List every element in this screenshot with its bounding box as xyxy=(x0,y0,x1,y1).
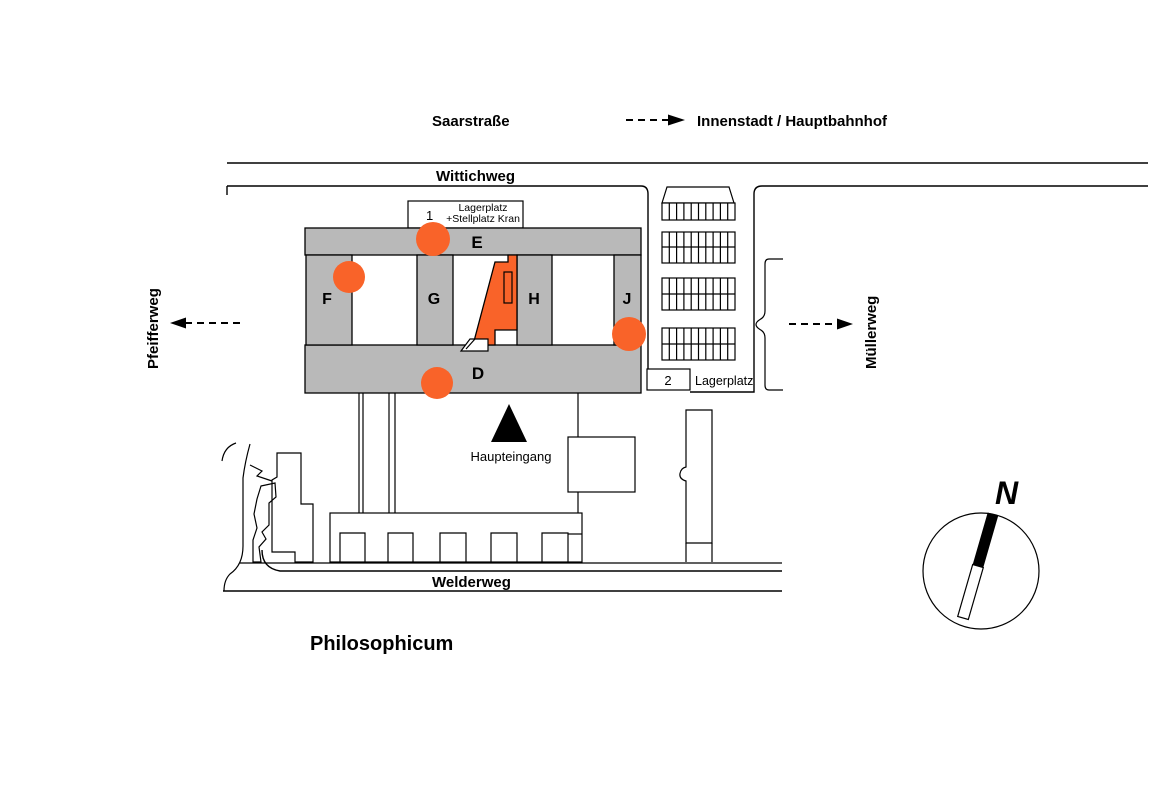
arrow-left-icon xyxy=(170,318,186,329)
compass-circle xyxy=(923,513,1039,629)
wing-h-label: H xyxy=(528,291,540,308)
street-welderweg-label: Welderweg xyxy=(432,574,511,591)
west-building-1 xyxy=(272,453,313,562)
orange-dot-2 xyxy=(333,261,365,293)
arrow-right-icon xyxy=(837,319,853,330)
street-muellerweg-label: Müllerweg xyxy=(863,296,880,369)
south-building-tall xyxy=(680,410,712,543)
direction-arrow-innenstadt xyxy=(626,115,685,126)
east-building-outline xyxy=(756,259,783,390)
main-entrance-label: Haupteingang xyxy=(471,449,552,464)
destination-label: Innenstadt / Hauptbahnhof xyxy=(697,113,888,130)
wing-g-label: G xyxy=(428,291,440,308)
north-label: N xyxy=(995,475,1019,511)
highlighted-building xyxy=(473,255,517,345)
building-complex: E F G H J D xyxy=(305,228,641,393)
direction-arrow-muellerweg xyxy=(789,319,853,330)
parking-area xyxy=(662,187,735,360)
corridor-lines xyxy=(359,393,395,513)
storage-2-label: Lagerplatz xyxy=(695,374,753,388)
orange-dot-3 xyxy=(612,317,646,351)
wing-d-label: D xyxy=(472,364,484,383)
wing-e-label: E xyxy=(471,233,482,252)
storage-box-2: 2 Lagerplatz xyxy=(647,369,753,390)
site-map: Saarstraße Innenstadt / Hauptbahnhof Wit… xyxy=(0,0,1175,800)
street-wittichweg-label: Wittichweg xyxy=(436,168,515,185)
street-pfeifferweg-label: Pfeifferweg xyxy=(145,288,162,369)
parking-roof xyxy=(662,187,734,203)
direction-arrow-pfeifferweg xyxy=(170,318,240,329)
storage-1-number: 1 xyxy=(426,208,433,223)
wing-j-label: J xyxy=(623,291,632,308)
south-building-long xyxy=(330,513,582,562)
south-building-small xyxy=(568,437,635,492)
compass: N xyxy=(923,475,1039,629)
site-map-svg: Saarstraße Innenstadt / Hauptbahnhof Wit… xyxy=(0,0,1175,800)
road-curve-large xyxy=(224,444,250,591)
arrow-right-icon xyxy=(668,115,685,126)
highlighted-building-annex xyxy=(461,339,488,351)
street-saarstrasse-label: Saarstraße xyxy=(432,113,510,130)
main-entrance: Haupteingang xyxy=(471,404,552,464)
road-curve-small xyxy=(222,443,236,461)
main-entrance-triangle-icon xyxy=(491,404,527,442)
map-title: Philosophicum xyxy=(310,633,453,655)
storage-2-number: 2 xyxy=(664,373,671,388)
wing-f-label: F xyxy=(322,291,332,308)
orange-dot-4 xyxy=(421,367,453,399)
storage-1-line2: +Stellplatz Kran xyxy=(446,213,520,225)
orange-dot-1 xyxy=(416,222,450,256)
